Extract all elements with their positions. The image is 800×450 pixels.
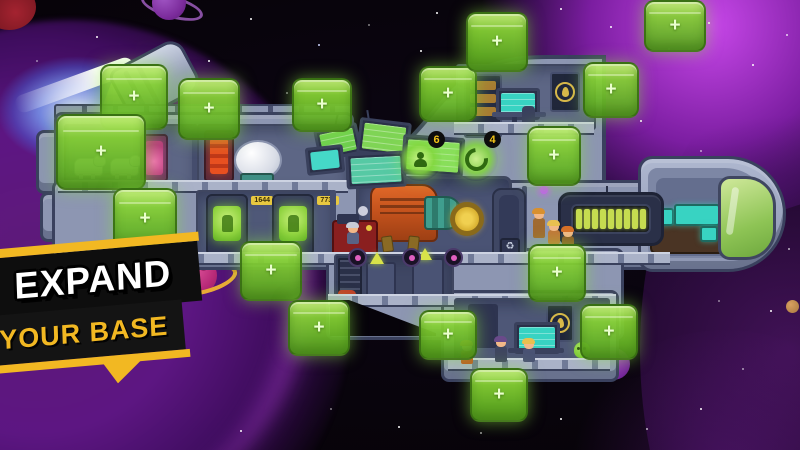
plus-icon: +: [139, 208, 150, 230]
expansion-tile[interactable]: +: [288, 300, 350, 356]
expansion-tile[interactable]: +: [580, 304, 638, 360]
plus-icon: +: [442, 83, 453, 105]
game-viewport: 1644 7730 ♻: [0, 0, 800, 450]
plus-icon: +: [493, 384, 504, 406]
crew-icon: [414, 152, 427, 167]
expansion-tile[interactable]: +: [419, 66, 477, 122]
notification-badge: 4: [484, 131, 501, 148]
plus-icon: +: [316, 94, 327, 116]
promo-subline-text: YOUR BASE: [0, 310, 169, 356]
plus-icon: +: [95, 141, 106, 163]
plus-icon: +: [548, 145, 559, 167]
plus-icon: +: [442, 324, 453, 346]
plus-icon: +: [603, 321, 614, 343]
plus-icon: +: [203, 98, 214, 120]
notification-task[interactable]: 4: [454, 137, 498, 181]
expansion-tile[interactable]: +: [419, 310, 477, 360]
plus-icon: +: [265, 260, 276, 282]
expansion-tile[interactable]: +: [644, 0, 706, 52]
expansion-tile[interactable]: +: [240, 241, 302, 301]
plus-icon: +: [313, 317, 324, 339]
expansion-tile[interactable]: +: [470, 368, 528, 422]
expansion-tile[interactable]: +: [178, 78, 240, 140]
plus-icon: +: [551, 262, 562, 284]
expansion-tile-layer: ++++++++++++++++: [0, 0, 800, 450]
plus-icon: +: [491, 31, 502, 53]
plus-icon: +: [605, 79, 616, 101]
promo-headline-text: EXPAND: [14, 252, 172, 308]
plus-icon: +: [669, 15, 680, 37]
notification-crew[interactable]: 6: [398, 137, 442, 181]
expansion-tile[interactable]: +: [527, 126, 581, 186]
expansion-tile[interactable]: +: [292, 78, 352, 132]
plus-icon: +: [128, 86, 139, 108]
task-icon: [460, 143, 492, 175]
notification-badge: 6: [428, 131, 445, 148]
expansion-tile[interactable]: +: [583, 62, 639, 118]
expansion-tile[interactable]: +: [528, 244, 586, 302]
expansion-tile[interactable]: +: [56, 114, 146, 190]
expansion-tile[interactable]: +: [466, 12, 528, 72]
